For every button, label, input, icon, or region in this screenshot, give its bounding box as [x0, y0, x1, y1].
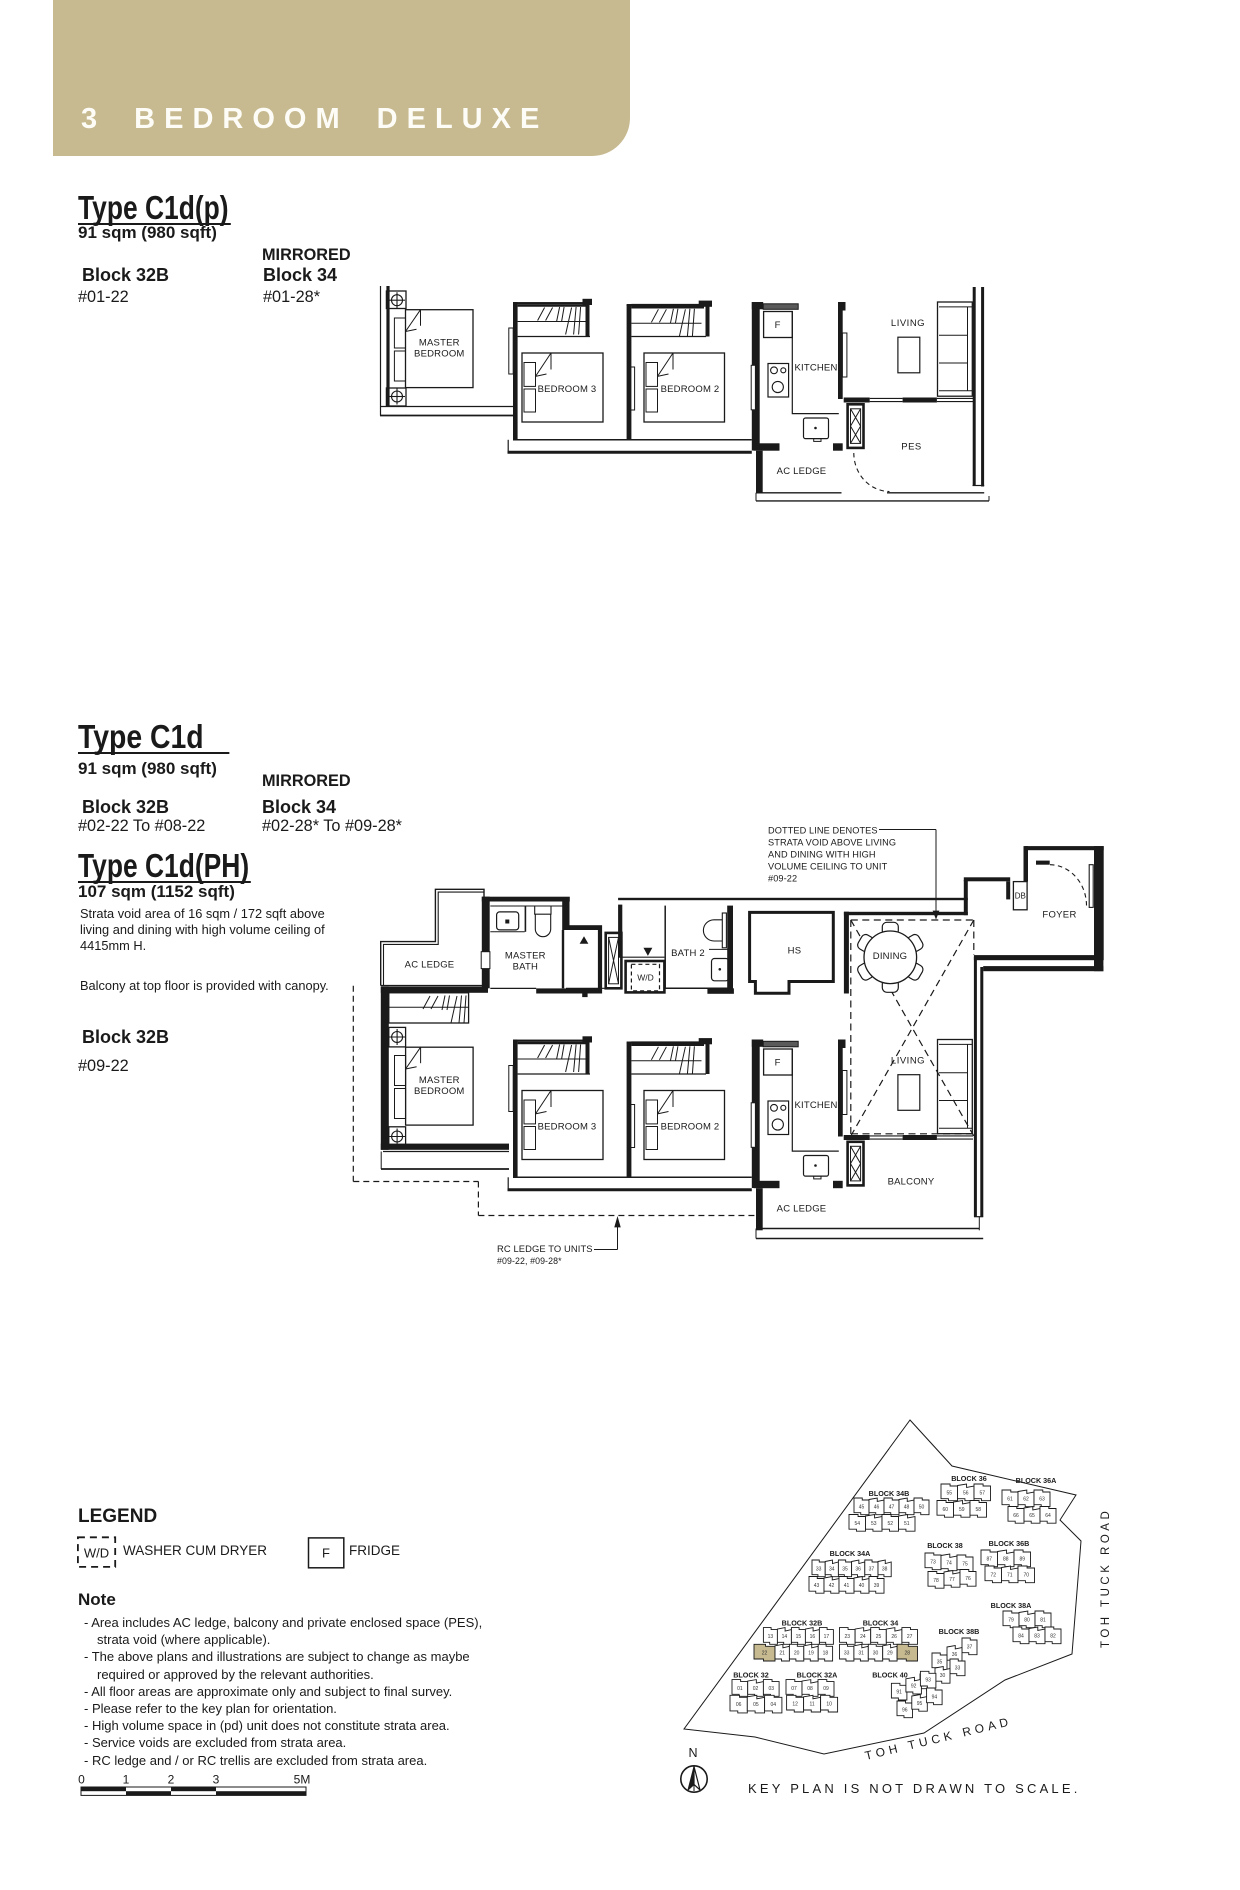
svg-text:34: 34 [829, 1566, 835, 1572]
svg-text:93: 93 [925, 1678, 931, 1684]
svg-text:HS: HS [788, 946, 802, 957]
svg-text:13: 13 [768, 1634, 774, 1640]
svg-text:05: 05 [753, 1702, 759, 1708]
svg-text:3: 3 [213, 1773, 220, 1787]
svg-text:57: 57 [979, 1490, 985, 1496]
svg-text:48: 48 [904, 1504, 910, 1510]
svg-text:BEDROOM: BEDROOM [414, 349, 465, 360]
svg-text:83: 83 [1034, 1633, 1040, 1639]
svg-text:BEDROOM: BEDROOM [414, 1086, 465, 1097]
svg-text:BLOCK 34B: BLOCK 34B [869, 1489, 910, 1498]
svg-text:37: 37 [869, 1566, 875, 1572]
svg-text:91: 91 [896, 1690, 902, 1696]
svg-text:42: 42 [829, 1583, 835, 1589]
svg-text:51: 51 [904, 1521, 910, 1527]
svg-text:78: 78 [933, 1578, 939, 1584]
svg-text:47: 47 [889, 1504, 895, 1510]
svg-text:45: 45 [859, 1504, 865, 1510]
svg-text:81: 81 [1040, 1617, 1046, 1623]
svg-text:33: 33 [955, 1665, 961, 1671]
svg-text:66: 66 [1013, 1513, 1019, 1519]
svg-text:BLOCK 34: BLOCK 34 [863, 1619, 899, 1628]
svg-text:BLOCK 36A: BLOCK 36A [1016, 1476, 1057, 1485]
svg-text:50: 50 [919, 1504, 925, 1510]
svg-text:33: 33 [844, 1651, 850, 1657]
svg-text:AC LEDGE: AC LEDGE [777, 1204, 827, 1215]
svg-text:BLOCK 38: BLOCK 38 [927, 1541, 963, 1550]
svg-text:59: 59 [959, 1507, 965, 1513]
svg-text:23: 23 [845, 1634, 851, 1640]
svg-text:72: 72 [990, 1572, 996, 1578]
svg-text:36: 36 [855, 1566, 861, 1572]
svg-text:87: 87 [986, 1556, 992, 1562]
svg-text:LIVING: LIVING [891, 1056, 925, 1067]
svg-text:TOH TUCK ROAD: TOH TUCK ROAD [1100, 1508, 1112, 1648]
svg-text:BLOCK 38B: BLOCK 38B [939, 1627, 980, 1636]
svg-text:AND DINING WITH HIGH: AND DINING WITH HIGH [768, 850, 876, 860]
svg-text:12: 12 [792, 1702, 798, 1708]
svg-text:96: 96 [902, 1707, 908, 1713]
svg-text:33: 33 [816, 1566, 822, 1572]
svg-text:03: 03 [768, 1686, 774, 1692]
svg-text:MASTER: MASTER [505, 951, 546, 962]
svg-text:02: 02 [753, 1686, 759, 1692]
svg-text:54: 54 [854, 1521, 860, 1527]
svg-text:27: 27 [907, 1634, 913, 1640]
svg-text:BLOCK 36: BLOCK 36 [951, 1474, 987, 1483]
svg-text:35: 35 [842, 1566, 848, 1572]
svg-text:01: 01 [737, 1686, 743, 1692]
svg-text:41: 41 [844, 1583, 850, 1589]
svg-text:BEDROOM 3: BEDROOM 3 [538, 384, 597, 395]
svg-text:39: 39 [874, 1583, 880, 1589]
svg-text:BEDROOM 3: BEDROOM 3 [538, 1122, 597, 1133]
svg-text:15: 15 [796, 1634, 802, 1640]
svg-text:71: 71 [1007, 1572, 1013, 1578]
svg-text:DOTTED LINE DENOTES: DOTTED LINE DENOTES [768, 826, 878, 836]
svg-text:16: 16 [810, 1634, 816, 1640]
svg-text:5M: 5M [294, 1773, 311, 1787]
svg-text:62: 62 [1023, 1496, 1029, 1502]
svg-text:77: 77 [949, 1577, 955, 1583]
svg-text:08: 08 [807, 1686, 813, 1692]
svg-text:BLOCK 34A: BLOCK 34A [830, 1549, 871, 1558]
svg-text:0: 0 [78, 1773, 85, 1787]
svg-text:VOLUME CEILING TO UNIT: VOLUME CEILING TO UNIT [768, 862, 888, 872]
svg-text:W/D: W/D [637, 973, 654, 983]
svg-text:84: 84 [1018, 1633, 1024, 1639]
svg-text:RC LEDGE TO UNITS: RC LEDGE TO UNITS [497, 1243, 593, 1254]
svg-text:BLOCK 36B: BLOCK 36B [989, 1539, 1030, 1548]
svg-text:BLOCK 38A: BLOCK 38A [991, 1601, 1032, 1610]
svg-text:35: 35 [937, 1659, 943, 1665]
svg-text:61: 61 [1007, 1496, 1013, 1502]
svg-text:BATH 2: BATH 2 [671, 948, 705, 959]
svg-text:74: 74 [946, 1560, 952, 1566]
svg-text:75: 75 [962, 1561, 968, 1567]
svg-text:F: F [775, 320, 781, 331]
svg-text:W/D: W/D [84, 1546, 109, 1561]
svg-text:TOH TUCK ROAD: TOH TUCK ROAD [863, 1714, 1013, 1763]
svg-text:30: 30 [873, 1651, 879, 1657]
svg-text:06: 06 [736, 1702, 742, 1708]
svg-text:40: 40 [859, 1583, 865, 1589]
svg-text:10: 10 [826, 1702, 832, 1708]
svg-text:STRATA VOID ABOVE LIVING: STRATA VOID ABOVE LIVING [768, 838, 896, 848]
svg-text:F: F [322, 1546, 330, 1561]
svg-text:26: 26 [891, 1634, 897, 1640]
svg-text:KEY PLAN IS NOT DRAWN TO SCALE: KEY PLAN IS NOT DRAWN TO SCALE. [748, 1781, 1081, 1796]
svg-text:19: 19 [808, 1651, 814, 1657]
svg-text:55: 55 [946, 1490, 952, 1496]
svg-text:89: 89 [1019, 1556, 1025, 1562]
svg-text:#09-22, #09-28*: #09-22, #09-28* [497, 1256, 562, 1266]
svg-text:53: 53 [871, 1521, 877, 1527]
svg-text:29: 29 [887, 1651, 893, 1657]
svg-text:MASTER: MASTER [419, 338, 460, 349]
svg-text:31: 31 [858, 1651, 864, 1657]
svg-text:BLOCK 40: BLOCK 40 [872, 1671, 908, 1680]
svg-text:18: 18 [823, 1651, 829, 1657]
svg-text:AC LEDGE: AC LEDGE [777, 466, 827, 477]
svg-text:25: 25 [876, 1634, 882, 1640]
svg-text:92: 92 [911, 1684, 917, 1690]
svg-text:46: 46 [874, 1504, 880, 1510]
svg-text:AC LEDGE: AC LEDGE [405, 960, 455, 971]
svg-text:30: 30 [940, 1673, 946, 1679]
svg-text:70: 70 [1023, 1572, 1029, 1578]
svg-text:76: 76 [965, 1576, 971, 1582]
svg-text:11: 11 [809, 1702, 814, 1708]
svg-text:DINING: DINING [873, 951, 907, 962]
svg-text:21: 21 [779, 1651, 785, 1657]
svg-text:07: 07 [791, 1686, 797, 1692]
svg-text:56: 56 [963, 1490, 969, 1496]
svg-text:65: 65 [1029, 1513, 1035, 1519]
svg-text:BLOCK 32B: BLOCK 32B [782, 1619, 823, 1628]
svg-text:60: 60 [942, 1507, 948, 1513]
svg-text:20: 20 [794, 1651, 800, 1657]
svg-text:PES: PES [901, 442, 922, 453]
svg-text:43: 43 [814, 1583, 820, 1589]
svg-text:82: 82 [1050, 1633, 1056, 1639]
svg-text:LIVING: LIVING [891, 318, 925, 329]
svg-text:BALCONY: BALCONY [888, 1177, 935, 1188]
svg-text:94: 94 [932, 1694, 938, 1700]
svg-text:14: 14 [782, 1634, 788, 1640]
svg-text:DB: DB [1015, 892, 1026, 901]
svg-text:BLOCK 32: BLOCK 32 [733, 1671, 769, 1680]
svg-text:28: 28 [905, 1651, 911, 1657]
svg-text:2: 2 [168, 1773, 175, 1787]
svg-text:KITCHEN: KITCHEN [794, 1100, 837, 1111]
svg-text:BEDROOM 2: BEDROOM 2 [661, 384, 720, 395]
svg-text:09: 09 [823, 1686, 829, 1692]
svg-text:24: 24 [860, 1634, 866, 1640]
svg-text:KITCHEN: KITCHEN [794, 363, 837, 374]
svg-text:38: 38 [882, 1566, 888, 1572]
svg-text:BLOCK 32A: BLOCK 32A [797, 1671, 838, 1680]
svg-text:58: 58 [975, 1507, 981, 1513]
svg-text:N: N [688, 1746, 697, 1760]
svg-text:73: 73 [930, 1559, 936, 1565]
svg-text:FOYER: FOYER [1042, 910, 1076, 921]
svg-text:52: 52 [887, 1521, 893, 1527]
svg-text:36: 36 [952, 1652, 958, 1658]
svg-text:64: 64 [1045, 1513, 1051, 1519]
svg-text:04: 04 [770, 1702, 776, 1708]
svg-text:80: 80 [1024, 1617, 1030, 1623]
svg-text:95: 95 [917, 1701, 923, 1707]
svg-text:79: 79 [1008, 1617, 1014, 1623]
svg-text:MASTER: MASTER [419, 1075, 460, 1086]
svg-text:#09-22: #09-22 [768, 874, 797, 884]
svg-text:BEDROOM 2: BEDROOM 2 [661, 1122, 720, 1133]
svg-text:17: 17 [824, 1634, 830, 1640]
svg-text:37: 37 [967, 1644, 973, 1650]
svg-text:88: 88 [1003, 1556, 1009, 1562]
svg-text:BATH: BATH [513, 962, 538, 973]
svg-text:F: F [775, 1058, 781, 1069]
svg-text:1: 1 [123, 1773, 130, 1787]
svg-text:22: 22 [762, 1651, 768, 1657]
svg-text:63: 63 [1039, 1496, 1045, 1502]
